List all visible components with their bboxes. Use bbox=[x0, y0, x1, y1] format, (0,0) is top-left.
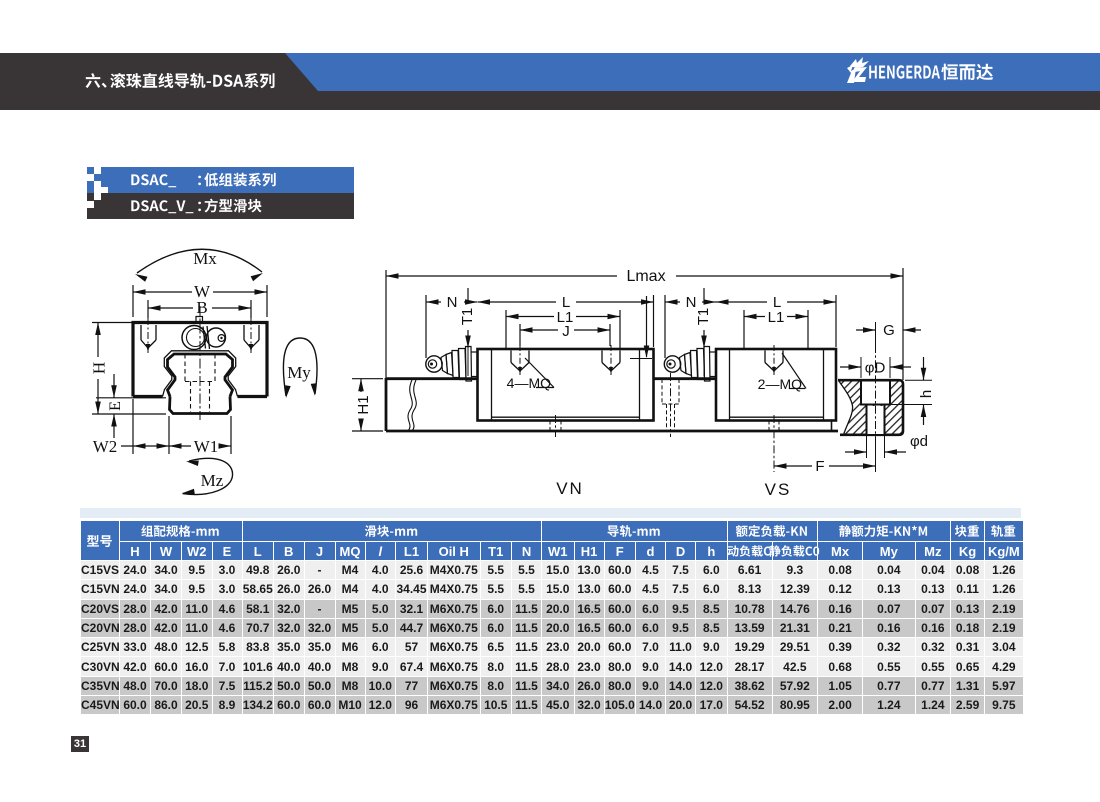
svg-text:Mx: Mx bbox=[193, 249, 217, 268]
svg-text:N: N bbox=[447, 294, 458, 311]
svg-text:Lmax: Lmax bbox=[626, 268, 665, 285]
svg-text:E: E bbox=[107, 401, 124, 411]
svg-text:W1: W1 bbox=[194, 437, 219, 456]
svg-text:4—MQ: 4—MQ bbox=[507, 375, 551, 391]
svg-text:VS: VS bbox=[765, 480, 792, 499]
svg-text:B: B bbox=[196, 298, 207, 317]
svg-text:L1: L1 bbox=[768, 309, 785, 326]
svg-text:h: h bbox=[918, 390, 935, 398]
svg-text:VN: VN bbox=[556, 479, 584, 498]
svg-text:H1: H1 bbox=[355, 395, 372, 414]
svg-text:H: H bbox=[90, 362, 109, 374]
svg-text:φD: φD bbox=[865, 360, 886, 377]
svg-text:My: My bbox=[287, 363, 311, 382]
svg-text:W2: W2 bbox=[93, 437, 118, 456]
svg-text:Mz: Mz bbox=[201, 471, 224, 490]
svg-text:J: J bbox=[562, 323, 570, 340]
svg-text:G: G bbox=[883, 322, 895, 339]
svg-text:T1: T1 bbox=[459, 308, 476, 326]
svg-text:2—MQ: 2—MQ bbox=[758, 376, 802, 392]
svg-text:φd: φd bbox=[910, 433, 928, 450]
svg-text:F: F bbox=[815, 458, 824, 475]
svg-text:T1: T1 bbox=[695, 308, 712, 326]
